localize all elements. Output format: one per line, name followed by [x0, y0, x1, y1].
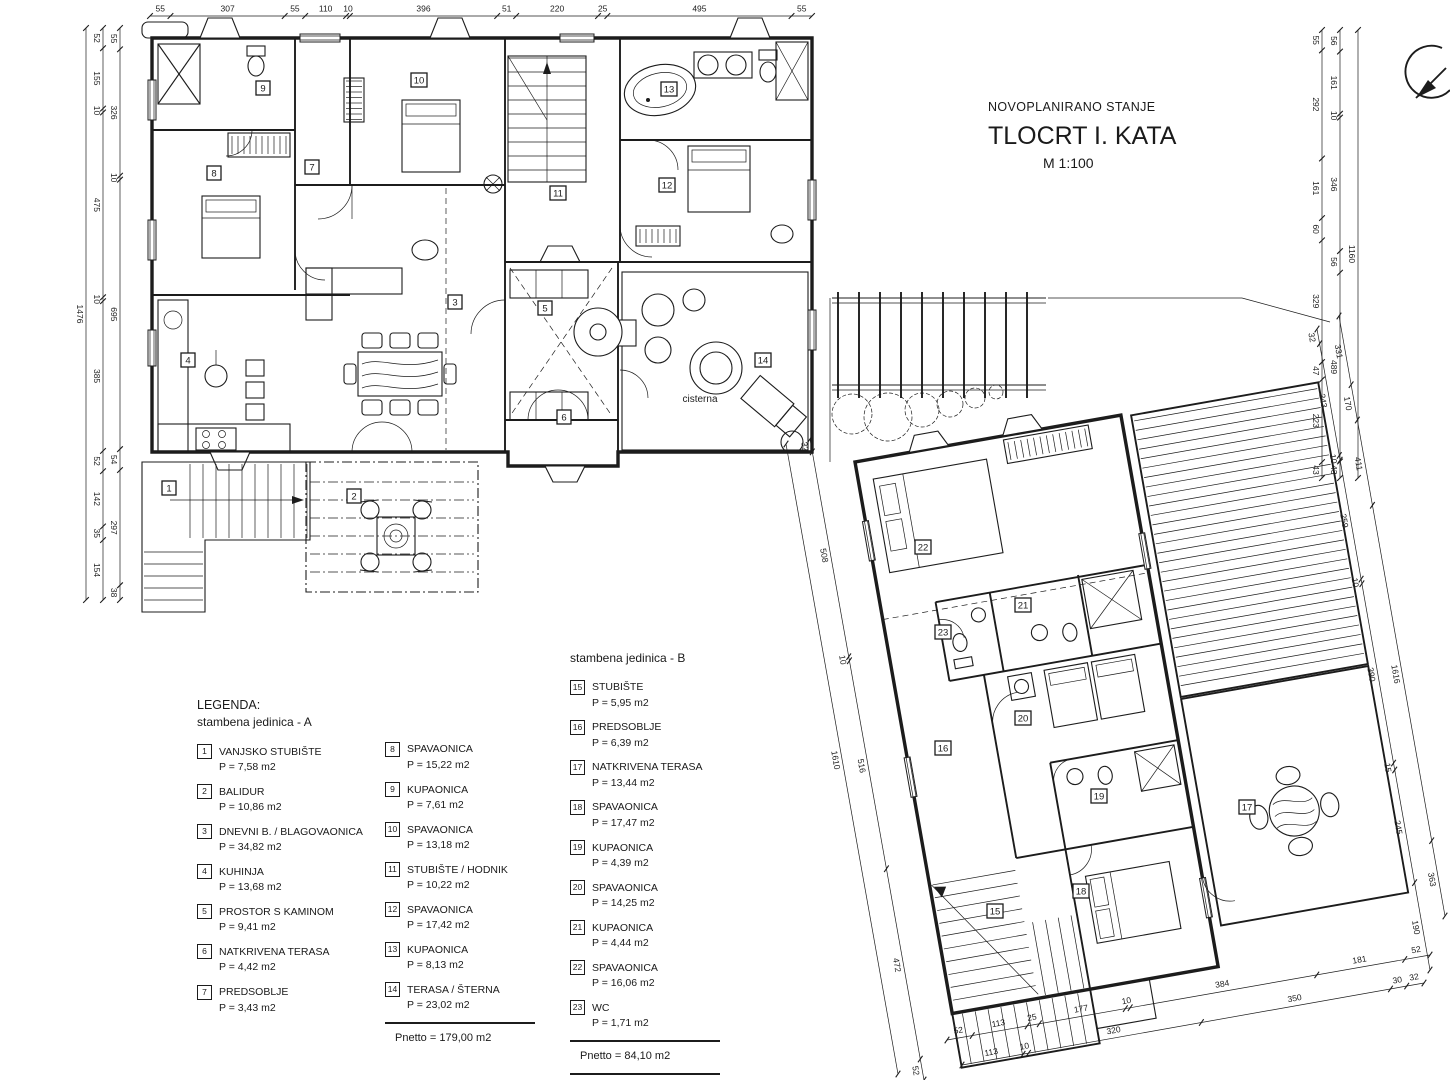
- room-marker-11: 11: [550, 186, 566, 200]
- repeat-line: [1141, 426, 1324, 458]
- dimension-tick: [1355, 417, 1360, 424]
- legend-item: 16PREDSOBLJEP = 6,39 m2: [570, 720, 755, 749]
- floor-plan-sheet: cisterna: [0, 0, 1450, 1080]
- sun-lounger-icon: [741, 376, 808, 439]
- dimension-value: 10: [1121, 995, 1132, 1007]
- repeat-line: [942, 922, 1025, 937]
- repeat-line: [1065, 996, 1074, 1046]
- dimension-value: 47: [1311, 366, 1321, 376]
- bathtub-icon: [620, 58, 701, 122]
- roof-vent-icon: [906, 430, 948, 453]
- repeat-line: [1157, 521, 1340, 553]
- svg-text:11: 11: [553, 189, 563, 200]
- dimension-tick: [1370, 502, 1375, 509]
- dimension-value: 223: [1311, 414, 1321, 428]
- chair-icon: [360, 553, 379, 572]
- legend-item: 8SPAVAONICAP = 15,22 m2: [385, 742, 560, 771]
- dimension-value: 43: [1311, 465, 1321, 475]
- legend-item: 9KUPAONICAP = 7,61 m2: [385, 782, 560, 811]
- repeat-line: [1136, 398, 1319, 430]
- north-arrow-icon: [1405, 46, 1450, 98]
- roof-vent-icon: [1000, 413, 1042, 436]
- repeat-line: [1142, 436, 1325, 468]
- drawing-title: TLOCRT I. KATA: [988, 122, 1248, 151]
- repeat-line: [1177, 634, 1360, 666]
- room-marker-13: 13: [661, 82, 677, 96]
- dimension-tick: [1429, 837, 1434, 844]
- dimension-value: 55: [797, 3, 807, 13]
- dimension-value: 259: [1338, 513, 1350, 529]
- legend-item: 19KUPAONICAP = 4,39 m2: [570, 840, 755, 869]
- sofa-icon: [306, 268, 402, 320]
- repeat-line: [1134, 389, 1317, 421]
- legend-item: 20SPAVAONICAP = 14,25 m2: [570, 880, 755, 909]
- room-marker-18: 18: [1073, 884, 1089, 898]
- repeat-line: [1154, 502, 1337, 534]
- room-marker-21: 21: [1015, 598, 1031, 612]
- svg-text:21: 21: [1018, 601, 1029, 612]
- dimension-value: 51: [502, 3, 512, 13]
- fireplace-icon: [574, 308, 636, 356]
- dimension-value: 25: [1026, 1011, 1037, 1023]
- room-marker-22: 22: [915, 540, 931, 554]
- svg-text:18: 18: [1076, 887, 1087, 898]
- legend-item: 17NATKRIVENA TERASAP = 13,44 m2: [570, 760, 755, 789]
- room-marker-23: 23: [935, 625, 951, 639]
- dimension-value: 243: [1317, 393, 1329, 409]
- repeat-line: [1085, 429, 1088, 447]
- repeat-line: [1065, 432, 1068, 450]
- svg-text:20: 20: [1018, 714, 1029, 725]
- legend-item: 7PREDSOBLJEP = 3,43 m2: [197, 985, 382, 1014]
- dimension-value: 142: [92, 492, 102, 506]
- dimension-value: 35: [92, 529, 102, 539]
- dimension-value: 30: [1392, 974, 1403, 986]
- dimension-value: 52: [953, 1024, 964, 1036]
- room-marker-7: 7: [305, 160, 319, 174]
- dimension-value: 350: [1287, 992, 1303, 1004]
- room-marker-9: 9: [256, 81, 270, 95]
- repeat-line: [1052, 998, 1061, 1048]
- dimension-value: 55: [155, 3, 165, 13]
- drawing-scale: M 1:100: [1043, 155, 1248, 171]
- repeat-line: [1021, 440, 1024, 458]
- unit-b-outer-wall: [855, 415, 1218, 1013]
- terrace-14: cisterna: [622, 272, 808, 453]
- repeat-line: [1137, 408, 1320, 440]
- dimension-tick: [1317, 340, 1322, 347]
- cistern-well-icon: [690, 342, 742, 394]
- dimension-line: [786, 444, 898, 1074]
- room-marker-5: 5: [538, 301, 552, 315]
- dimension-value: 346: [1329, 177, 1339, 191]
- terrace-2: [306, 462, 478, 592]
- svg-text:2: 2: [351, 492, 356, 503]
- dimension-value: 1476: [75, 305, 85, 324]
- repeat-line: [1072, 431, 1075, 449]
- dimension-value: 10: [1328, 453, 1340, 464]
- svg-text:16: 16: [938, 744, 949, 755]
- repeat-line: [1151, 483, 1334, 515]
- legend-item: 22SPAVAONICAP = 16,06 m2: [570, 960, 755, 989]
- dimension-value: 32: [799, 441, 811, 452]
- bath-19-fixtures: [1065, 745, 1181, 804]
- dimension-value: 245: [1392, 820, 1404, 836]
- dimension-value: 43: [1329, 465, 1339, 475]
- svg-text:1: 1: [166, 484, 171, 495]
- repeat-line: [944, 934, 1027, 949]
- bathroom-9-fixtures: [158, 44, 265, 104]
- legend-item: 23WCP = 1,71 m2: [570, 1000, 755, 1029]
- repeat-line: [1147, 464, 1330, 496]
- repeat-line: [1039, 1000, 1048, 1050]
- legend-item: 11STUBIŠTE / HODNIKP = 10,22 m2: [385, 862, 560, 891]
- dimension-value: 56: [1329, 257, 1339, 267]
- dimension-value: 181: [1352, 953, 1368, 965]
- dimension-tick: [1443, 913, 1448, 920]
- repeat-line: [1169, 587, 1352, 619]
- dimension-value: 177: [1073, 1002, 1089, 1014]
- repeat-line: [935, 883, 1018, 898]
- legend-item: 3DNEVNI B. / BLAGOVAONICAP = 34,82 m2: [197, 824, 382, 853]
- pergola: [830, 292, 1330, 462]
- repeat-line: [948, 960, 1031, 975]
- repeat-line: [1033, 922, 1046, 995]
- dimension-value: 25: [598, 3, 608, 13]
- dimension-tick: [918, 1056, 923, 1063]
- repeat-line: [1144, 445, 1327, 477]
- cisterna-label: cisterna: [682, 394, 717, 405]
- dimension-value: 508: [818, 548, 830, 564]
- dimension-value: 52: [910, 1065, 922, 1076]
- dimension-value: 411: [1353, 456, 1365, 471]
- legend-item: 18SPAVAONICAP = 17,47 m2: [570, 800, 755, 829]
- repeat-line: [1040, 437, 1043, 455]
- roof-vent-icons: [200, 18, 770, 482]
- dimension-value: 495: [692, 3, 706, 13]
- repeat-line: [1174, 616, 1357, 648]
- room-marker-17: 17: [1239, 800, 1255, 814]
- bed-icon: [1085, 862, 1181, 944]
- room-marker-3: 3: [448, 295, 462, 309]
- svg-text:12: 12: [662, 181, 673, 192]
- dimension-tick: [1428, 967, 1433, 974]
- legend-item: 2BALIDURP = 10,86 m2: [197, 784, 382, 813]
- legend-divider: [570, 1040, 720, 1042]
- dimension-value: 54: [109, 455, 119, 465]
- legend-heading: LEGENDA:: [197, 698, 382, 712]
- dimension-value: 297: [109, 521, 119, 535]
- dimension-value: 10: [1350, 577, 1362, 588]
- stairs-11: [508, 56, 586, 182]
- double-sink-icon: [694, 52, 752, 78]
- repeat-line: [946, 947, 1029, 962]
- twin-beds-icon: [1044, 654, 1145, 727]
- dimension-value: 15: [1382, 762, 1394, 773]
- legend-item: 4KUHINJAP = 13,68 m2: [197, 864, 382, 893]
- door-swing-icons: [226, 130, 678, 452]
- svg-text:7: 7: [309, 163, 314, 174]
- dimension-value: 384: [1214, 978, 1230, 990]
- dimension-value: 220: [550, 3, 564, 13]
- svg-text:15: 15: [990, 907, 1001, 918]
- dimension-value: 331: [1333, 344, 1345, 360]
- dimension-tick: [1337, 313, 1342, 320]
- svg-text:6: 6: [561, 413, 566, 424]
- dimension-value: 385: [92, 369, 102, 383]
- dimension-value: 307: [220, 3, 234, 13]
- repeat-line: [1046, 435, 1049, 453]
- dining-table-icon: [344, 333, 456, 415]
- entry-steps: [952, 979, 1159, 1068]
- room-marker-16: 16: [935, 741, 951, 755]
- round-table-icon: [1242, 759, 1346, 863]
- svg-text:3: 3: [452, 298, 457, 309]
- repeat-line: [1152, 493, 1335, 525]
- legend-divider: [570, 1073, 720, 1075]
- dimension-value: 320: [1106, 1024, 1122, 1036]
- repeat-line: [1176, 625, 1359, 657]
- repeat-line: [1071, 915, 1084, 988]
- chair-icon: [413, 553, 432, 572]
- svg-text:5: 5: [542, 304, 547, 315]
- bush-icons: [832, 385, 1003, 441]
- repeat-line: [1146, 455, 1329, 487]
- dimension-value: 1160: [1347, 245, 1357, 264]
- dimension-value: 32: [1408, 971, 1419, 983]
- dimension-value: 10: [92, 106, 102, 116]
- repeat-line: [951, 973, 1034, 988]
- room-marker-4: 4: [181, 353, 195, 367]
- room-marker-12: 12: [659, 178, 675, 192]
- legend-item: 1VANJSKO STUBIŠTEP = 7,58 m2: [197, 744, 382, 773]
- unit-a-subtotal: Pnetto = 179,00 m2: [395, 1032, 560, 1045]
- svg-text:22: 22: [918, 543, 929, 554]
- legend-unit-a-heading: stambena jedinica - A: [197, 716, 382, 730]
- legend-unit-b-heading: stambena jedinica - B: [570, 652, 755, 666]
- dimension-value: 363: [1426, 872, 1438, 888]
- svg-text:13: 13: [664, 85, 675, 96]
- closet-icon: [344, 78, 364, 122]
- dimension-value: 695: [109, 307, 119, 321]
- room-marker-8: 8: [207, 166, 221, 180]
- repeat-line: [1008, 442, 1011, 460]
- dimension-tick: [884, 865, 889, 872]
- dimension-value: 55: [109, 34, 119, 44]
- repeat-line: [1078, 993, 1087, 1043]
- legend-item: 15STUBIŠTEP = 5,95 m2: [570, 680, 755, 709]
- svg-text:9: 9: [260, 84, 265, 95]
- legend-item: 12SPAVAONICAP = 17,42 m2: [385, 902, 560, 931]
- legend-item: 6NATKRIVENA TERASAP = 4,42 m2: [197, 944, 382, 973]
- dimension-value: 10: [109, 173, 119, 183]
- room-marker-2: 2: [347, 489, 361, 503]
- dimension-line: [962, 983, 1424, 1065]
- dimension-tick: [896, 1071, 901, 1078]
- dimension-value: 55: [290, 3, 300, 13]
- repeat-line: [962, 1014, 971, 1064]
- dimension-value: 390: [1365, 667, 1377, 683]
- dimension-value: 190: [1410, 920, 1422, 936]
- dimension-value: 472: [891, 957, 903, 973]
- repeat-line: [1164, 559, 1347, 591]
- svg-text:19: 19: [1094, 792, 1105, 803]
- bed-icon: [202, 196, 260, 258]
- dimension-value: 489: [1329, 360, 1339, 374]
- unit-b-subtotal: Pnetto = 84,10 m2: [580, 1050, 755, 1063]
- legend-item: 10SPAVAONICAP = 13,18 m2: [385, 822, 560, 851]
- armchair-icon: [412, 240, 438, 260]
- dimension-value: 38: [109, 588, 119, 598]
- kitchen-counter-icon: [158, 300, 290, 452]
- unit-a-interior-walls: [152, 38, 812, 452]
- legend-unit-b: stambena jedinica - B 15STUBIŠTEP = 5,95…: [570, 652, 755, 1080]
- chimney-icon: [142, 22, 188, 38]
- bed-icon: [688, 146, 750, 212]
- dimension-line: [947, 955, 1430, 1040]
- dimension-value: 1610: [829, 750, 842, 771]
- dimension-value: 32: [1306, 332, 1318, 343]
- repeat-line: [1149, 474, 1332, 506]
- repeat-line: [1059, 433, 1062, 451]
- dimension-value: 110: [319, 3, 333, 13]
- dimension-tick: [1349, 381, 1354, 388]
- armchair-icon: [771, 225, 793, 243]
- dimension-tick: [784, 441, 789, 448]
- repeat-line: [939, 909, 1022, 924]
- room-marker-20: 20: [1015, 711, 1031, 725]
- room-marker-1: 1: [162, 481, 176, 495]
- dimension-value: 154: [92, 563, 102, 577]
- dimension-value: 10: [343, 3, 353, 13]
- room-marker-19: 19: [1091, 789, 1107, 803]
- legend-item: 13KUPAONICAP = 8,13 m2: [385, 942, 560, 971]
- dimension-value: 10: [1019, 1040, 1030, 1052]
- dimension-value: 55: [1311, 35, 1321, 45]
- repeat-line: [1167, 578, 1350, 610]
- chair-icon: [413, 500, 432, 519]
- repeat-line: [1053, 434, 1056, 452]
- dimension-value: 10: [1329, 111, 1339, 121]
- repeat-line: [1033, 438, 1036, 456]
- repeat-line: [1171, 597, 1354, 629]
- closet-icon: [636, 226, 680, 246]
- dimension-value: 292: [1311, 97, 1321, 111]
- dimension-value: 60: [1311, 224, 1321, 234]
- stairs-15: [932, 862, 1084, 1011]
- dimension-value: 52: [92, 456, 102, 466]
- repeat-line: [1159, 530, 1342, 562]
- title-block: NOVOPLANIRANO STANJE TLOCRT I. KATA M 1:…: [988, 100, 1248, 171]
- dimension-line: [1317, 329, 1430, 970]
- repeat-line: [1001, 1007, 1010, 1057]
- dimension-value: 329: [1311, 294, 1321, 308]
- unit-a-building: cisterna: [142, 18, 816, 612]
- drawing-status-label: NOVOPLANIRANO STANJE: [988, 100, 1248, 114]
- bed-icon: [873, 459, 1003, 573]
- dimension-value: 326: [109, 105, 119, 119]
- repeat-line: [1156, 512, 1339, 544]
- wc-23-fixtures: [946, 607, 994, 669]
- svg-text:23: 23: [938, 628, 949, 639]
- repeat-line: [1027, 439, 1030, 457]
- repeat-line: [933, 870, 1016, 885]
- repeat-line: [1172, 606, 1355, 638]
- dimension-value: 396: [416, 3, 430, 13]
- room-marker-6: 6: [557, 410, 571, 424]
- svg-text:8: 8: [211, 169, 216, 180]
- repeat-line: [1045, 920, 1058, 993]
- dimension-value: 161: [1311, 181, 1321, 195]
- svg-text:17: 17: [1242, 803, 1253, 814]
- legend-unit-a-col2: 8SPAVAONICAP = 15,22 m2 9KUPAONICAP = 7,…: [385, 742, 560, 1045]
- repeat-line: [975, 1011, 984, 1061]
- roof-hatch: [1131, 382, 1368, 697]
- dimension-value: 10: [92, 294, 102, 304]
- dimension-value: 52: [92, 33, 102, 43]
- washing-machine-icon: [1008, 673, 1036, 701]
- dimension-value: 10: [837, 654, 849, 665]
- legend-divider: [385, 1022, 535, 1024]
- svg-text:10: 10: [414, 76, 425, 87]
- svg-text:14: 14: [758, 356, 769, 367]
- repeat-line: [1058, 918, 1071, 991]
- toilet-icon: [759, 50, 777, 82]
- dimension-value: 161: [1329, 76, 1339, 90]
- svg-text:4: 4: [185, 356, 190, 367]
- dimension-value: 516: [856, 758, 868, 774]
- legend-item: 14TERASA / ŠTERNAP = 23,02 m2: [385, 982, 560, 1011]
- dimension-value: 475: [92, 198, 102, 212]
- repeat-line: [1161, 540, 1344, 572]
- repeat-line: [1014, 441, 1017, 459]
- repeat-line: [1166, 568, 1349, 600]
- bed-icon: [402, 100, 460, 172]
- dimension-value: 113: [991, 1017, 1006, 1029]
- plant-icon: [484, 175, 502, 193]
- repeat-line: [1162, 549, 1345, 581]
- room-marker-10: 10: [411, 73, 427, 87]
- repeat-line: [953, 986, 1036, 1001]
- repeat-line: [1078, 430, 1081, 448]
- legend-unit-a-col1: LEGENDA: stambena jedinica - A 1VANJSKO …: [197, 698, 382, 1025]
- dimension-value: 155: [92, 71, 102, 85]
- room-marker-15: 15: [987, 904, 1003, 918]
- chair-icon: [360, 500, 379, 519]
- dimension-value: 56: [1329, 36, 1339, 46]
- dimension-value: 52: [1410, 944, 1421, 956]
- dimension-value: 170: [1342, 396, 1354, 412]
- legend-item: 21KUPAONICAP = 4,44 m2: [570, 920, 755, 949]
- terrace-17: [1181, 666, 1408, 925]
- room-marker-14: 14: [755, 353, 771, 367]
- dimension-tick: [1412, 879, 1417, 886]
- repeat-line: [1139, 417, 1322, 449]
- legend-item: 5PROSTOR S KAMINOMP = 9,41 m2: [197, 904, 382, 933]
- dimension-value: 1616: [1389, 664, 1402, 685]
